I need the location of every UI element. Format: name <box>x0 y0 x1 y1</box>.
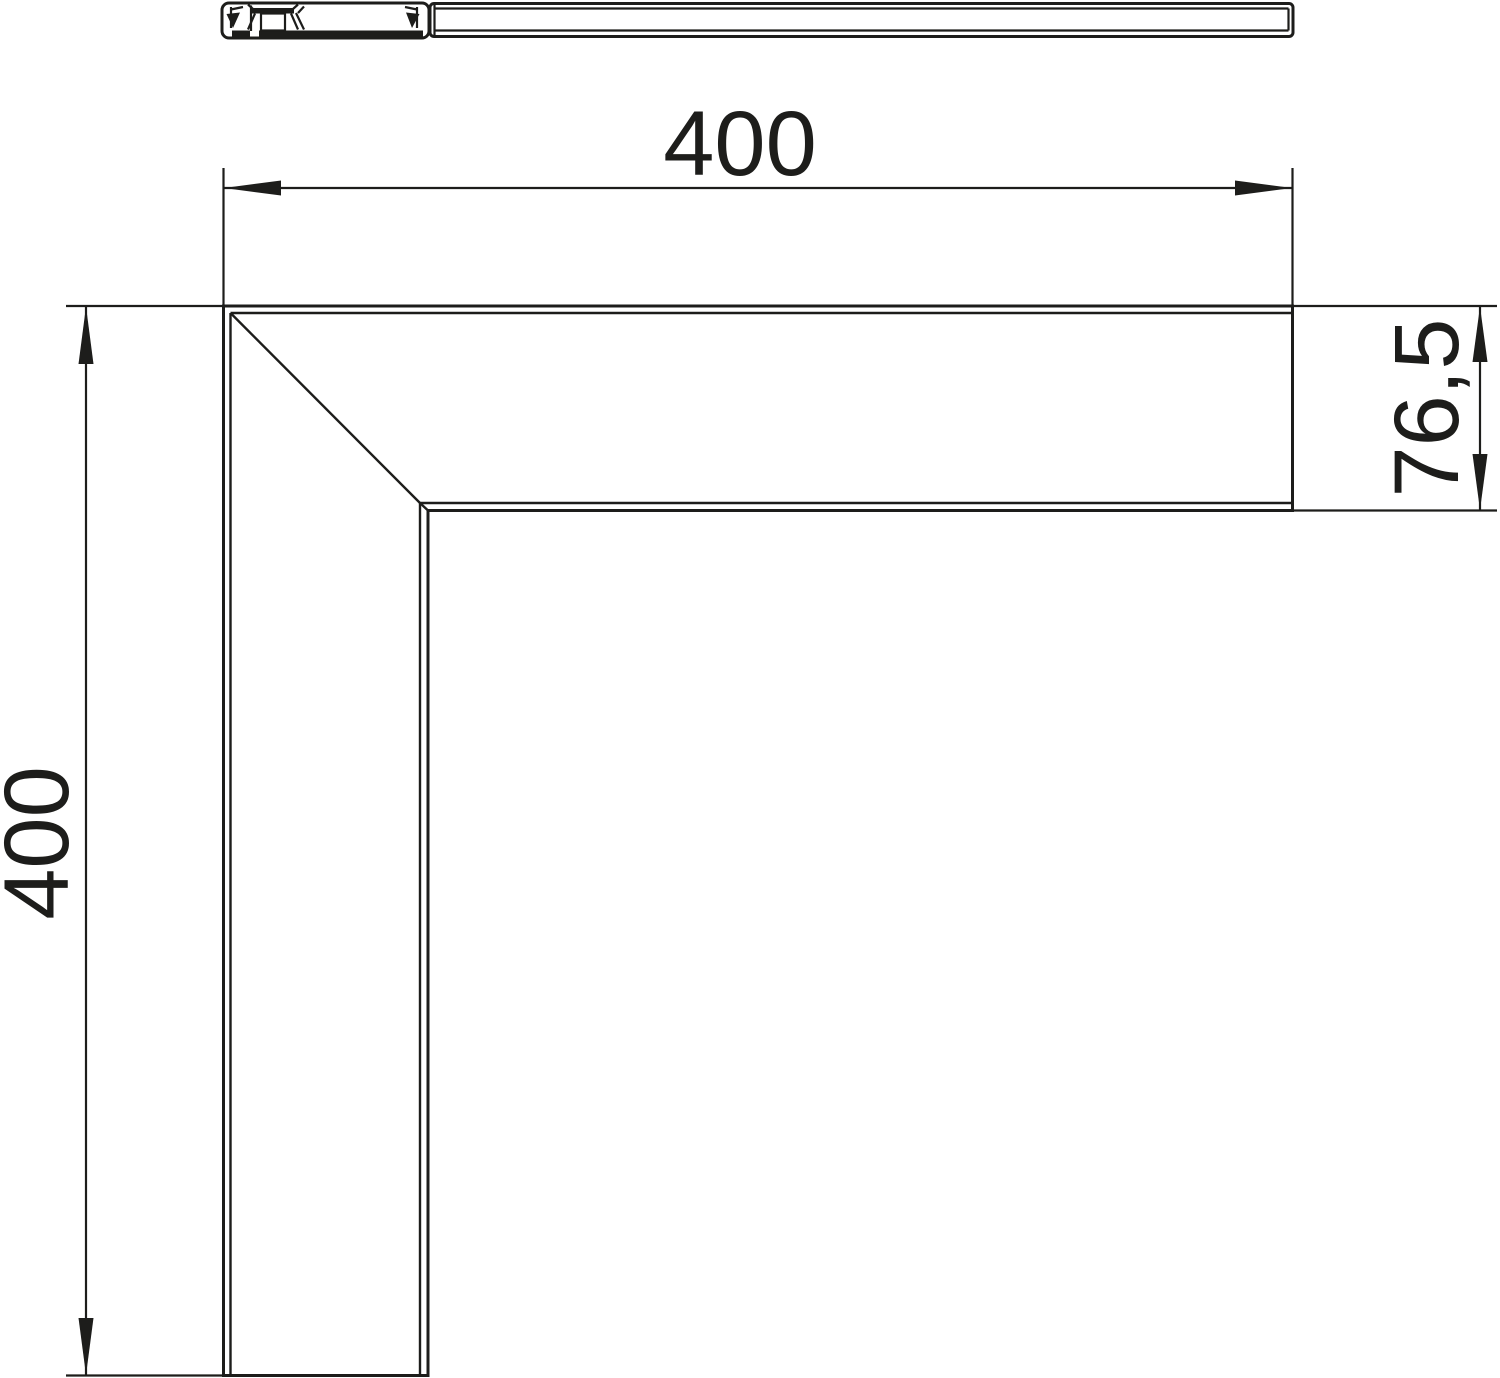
left-clip-tick <box>231 7 243 10</box>
arrow-bottom <box>79 1318 94 1375</box>
corner-view <box>224 306 1293 1376</box>
profile-tail <box>430 4 1293 37</box>
center-boss <box>248 5 298 31</box>
brace-tick <box>298 7 304 14</box>
profile-section <box>222 3 429 38</box>
miter-line <box>231 313 421 503</box>
profile-top-view <box>222 3 1293 38</box>
section-bottom-band <box>232 31 250 38</box>
arrow-right <box>1235 181 1292 196</box>
boss-cavity <box>261 14 285 31</box>
technical-drawing: 400 400 76,5 <box>0 0 1500 1378</box>
dimension-label-horizontal: 400 <box>663 93 817 195</box>
arrow-top <box>79 307 94 365</box>
right-clip <box>405 7 420 28</box>
dimension-label-side: 76,5 <box>1376 318 1478 497</box>
dimension-vertical-400: 400 <box>0 306 428 1376</box>
arrow-left <box>224 181 281 196</box>
dimension-horizontal-400: 400 <box>224 93 1293 306</box>
dimension-side-76-5: 76,5 <box>1293 306 1498 511</box>
left-clip-barb <box>227 13 241 29</box>
fold-lines <box>231 313 1293 1376</box>
left-clip <box>227 7 244 28</box>
dimension-label-vertical: 400 <box>0 766 88 920</box>
right-clip-tick <box>405 7 417 10</box>
